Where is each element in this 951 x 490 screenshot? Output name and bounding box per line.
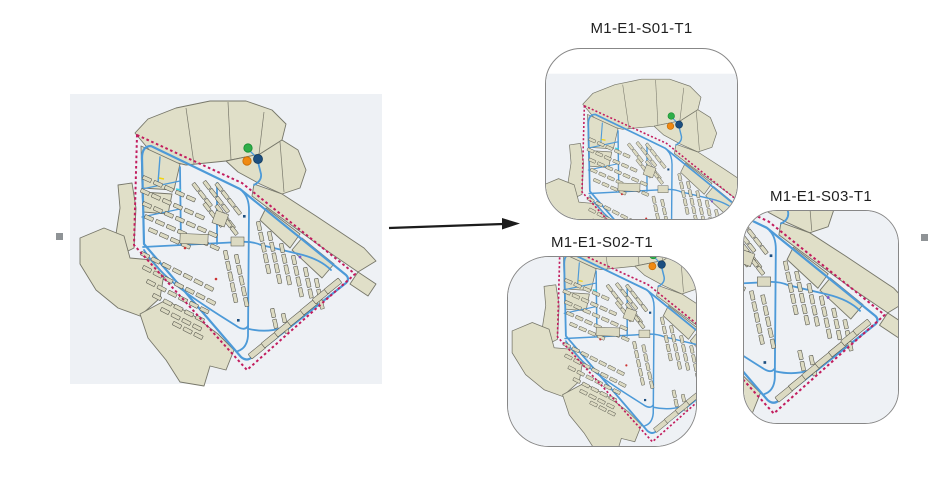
selection-handle-right[interactable] [921,234,928,241]
submap-s03-frame [743,210,899,424]
figure-canvas: M1-E1-S01-T1 M1-E1-S02-T1 M1-E1-S03-T1 [0,0,951,490]
submap-s01-frame [545,48,738,220]
submap-s01-map [546,49,737,219]
submap-s02-title: M1-E1-S02-T1 [507,234,697,251]
submap-s02-frame [507,256,697,447]
submap-s01-title: M1-E1-S01-T1 [545,20,738,37]
submap-s02-map [508,257,696,446]
submap-s03-map [744,211,898,423]
selection-handle-left[interactable] [56,233,63,240]
arrow-icon [385,214,525,240]
submap-s03-title: M1-E1-S03-T1 [743,188,899,205]
source-map [68,88,386,388]
